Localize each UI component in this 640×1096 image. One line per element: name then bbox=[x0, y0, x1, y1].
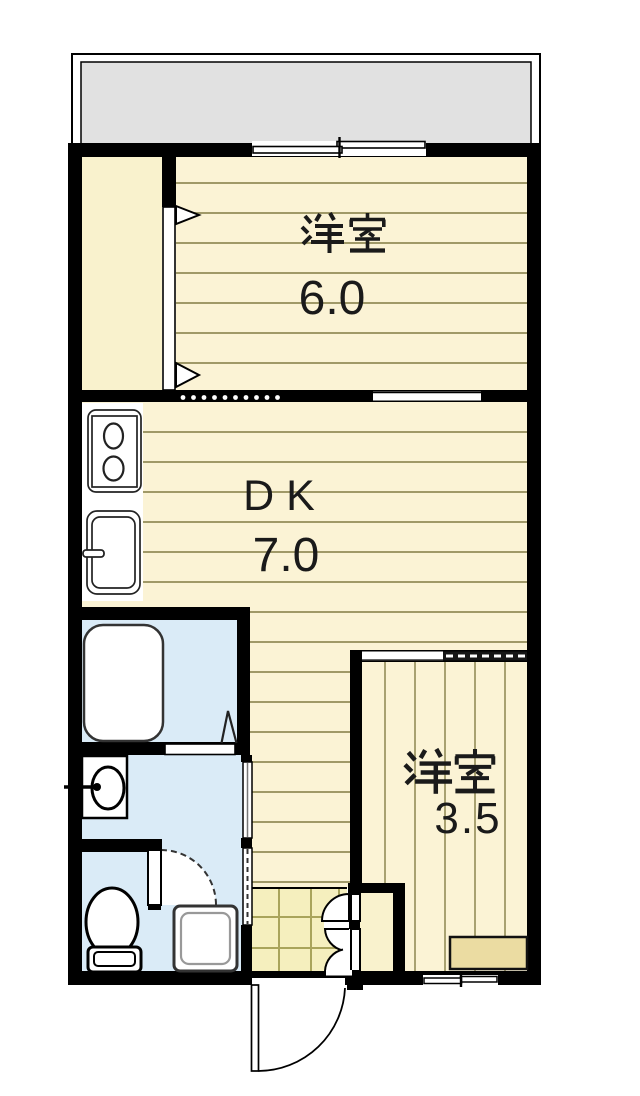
svg-text:DK: DK bbox=[243, 472, 327, 520]
svg-text:3.5: 3.5 bbox=[434, 794, 501, 843]
svg-text:6.0: 6.0 bbox=[299, 272, 366, 325]
svg-text:7.0: 7.0 bbox=[253, 529, 320, 582]
